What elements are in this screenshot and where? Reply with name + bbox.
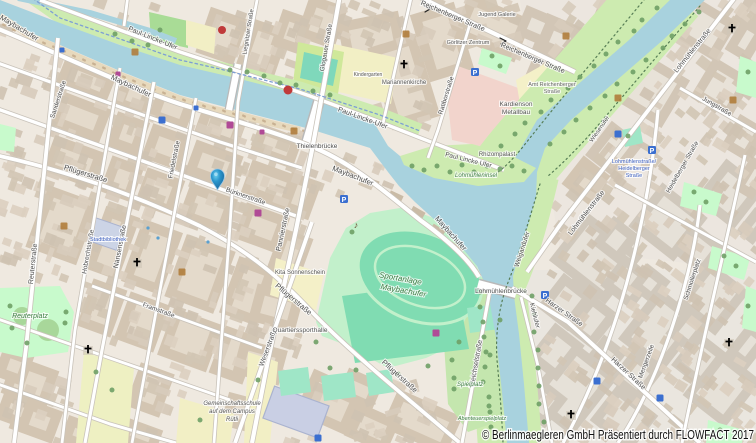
svg-text:Thielenbrücke: Thielenbrücke [297,143,338,150]
svg-text:Heidelberger: Heidelberger [618,166,650,172]
svg-text:Görlitzer Zentrum: Görlitzer Zentrum [447,40,490,46]
svg-text:© Berlinmaegleren GmbH Präsent: © Berlinmaegleren GmbH Präsentiert durch… [482,427,754,442]
svg-text:Kindergarten: Kindergarten [354,72,383,78]
svg-text:Quartierssporthalle: Quartierssporthalle [273,327,328,334]
svg-text:Straße: Straße [544,89,561,95]
svg-text:Metallbau: Metallbau [502,109,531,116]
svg-text:P: P [342,197,347,204]
svg-text:P: P [473,70,478,77]
svg-text:Amt Reichenberger: Amt Reichenberger [528,82,576,88]
svg-text:Lohmühlenbrücke: Lohmühlenbrücke [475,288,527,295]
svg-text:Rütli: Rütli [226,417,239,423]
svg-text:Jugend Galerie: Jugend Galerie [478,12,515,18]
svg-text:Kardienson: Kardienson [500,101,533,108]
svg-text:Lohmühleninsel: Lohmühleninsel [455,173,498,179]
svg-text:Gemeinschaftsschule: Gemeinschaftsschule [203,401,261,407]
svg-text:Spielplatz: Spielplatz [457,382,483,388]
svg-text:Rhizompalast: Rhizompalast [479,152,516,158]
svg-text:Stadtbibliothek: Stadtbibliothek [90,237,126,243]
svg-text:Mariannenkirche: Mariannenkirche [382,80,427,86]
svg-text:Kita Sonnenschein: Kita Sonnenschein [275,270,325,276]
svg-text:Straße: Straße [626,173,643,179]
svg-text:auf dem Campus: auf dem Campus [209,409,255,415]
svg-text:P: P [650,148,655,155]
svg-text:♪: ♪ [354,220,359,230]
svg-text:Reuterplatz: Reuterplatz [12,313,48,320]
svg-text:Abenteuerspielplatz: Abenteuerspielplatz [457,416,507,422]
svg-text:Lohmühlenstraße/: Lohmühlenstraße/ [612,159,657,165]
